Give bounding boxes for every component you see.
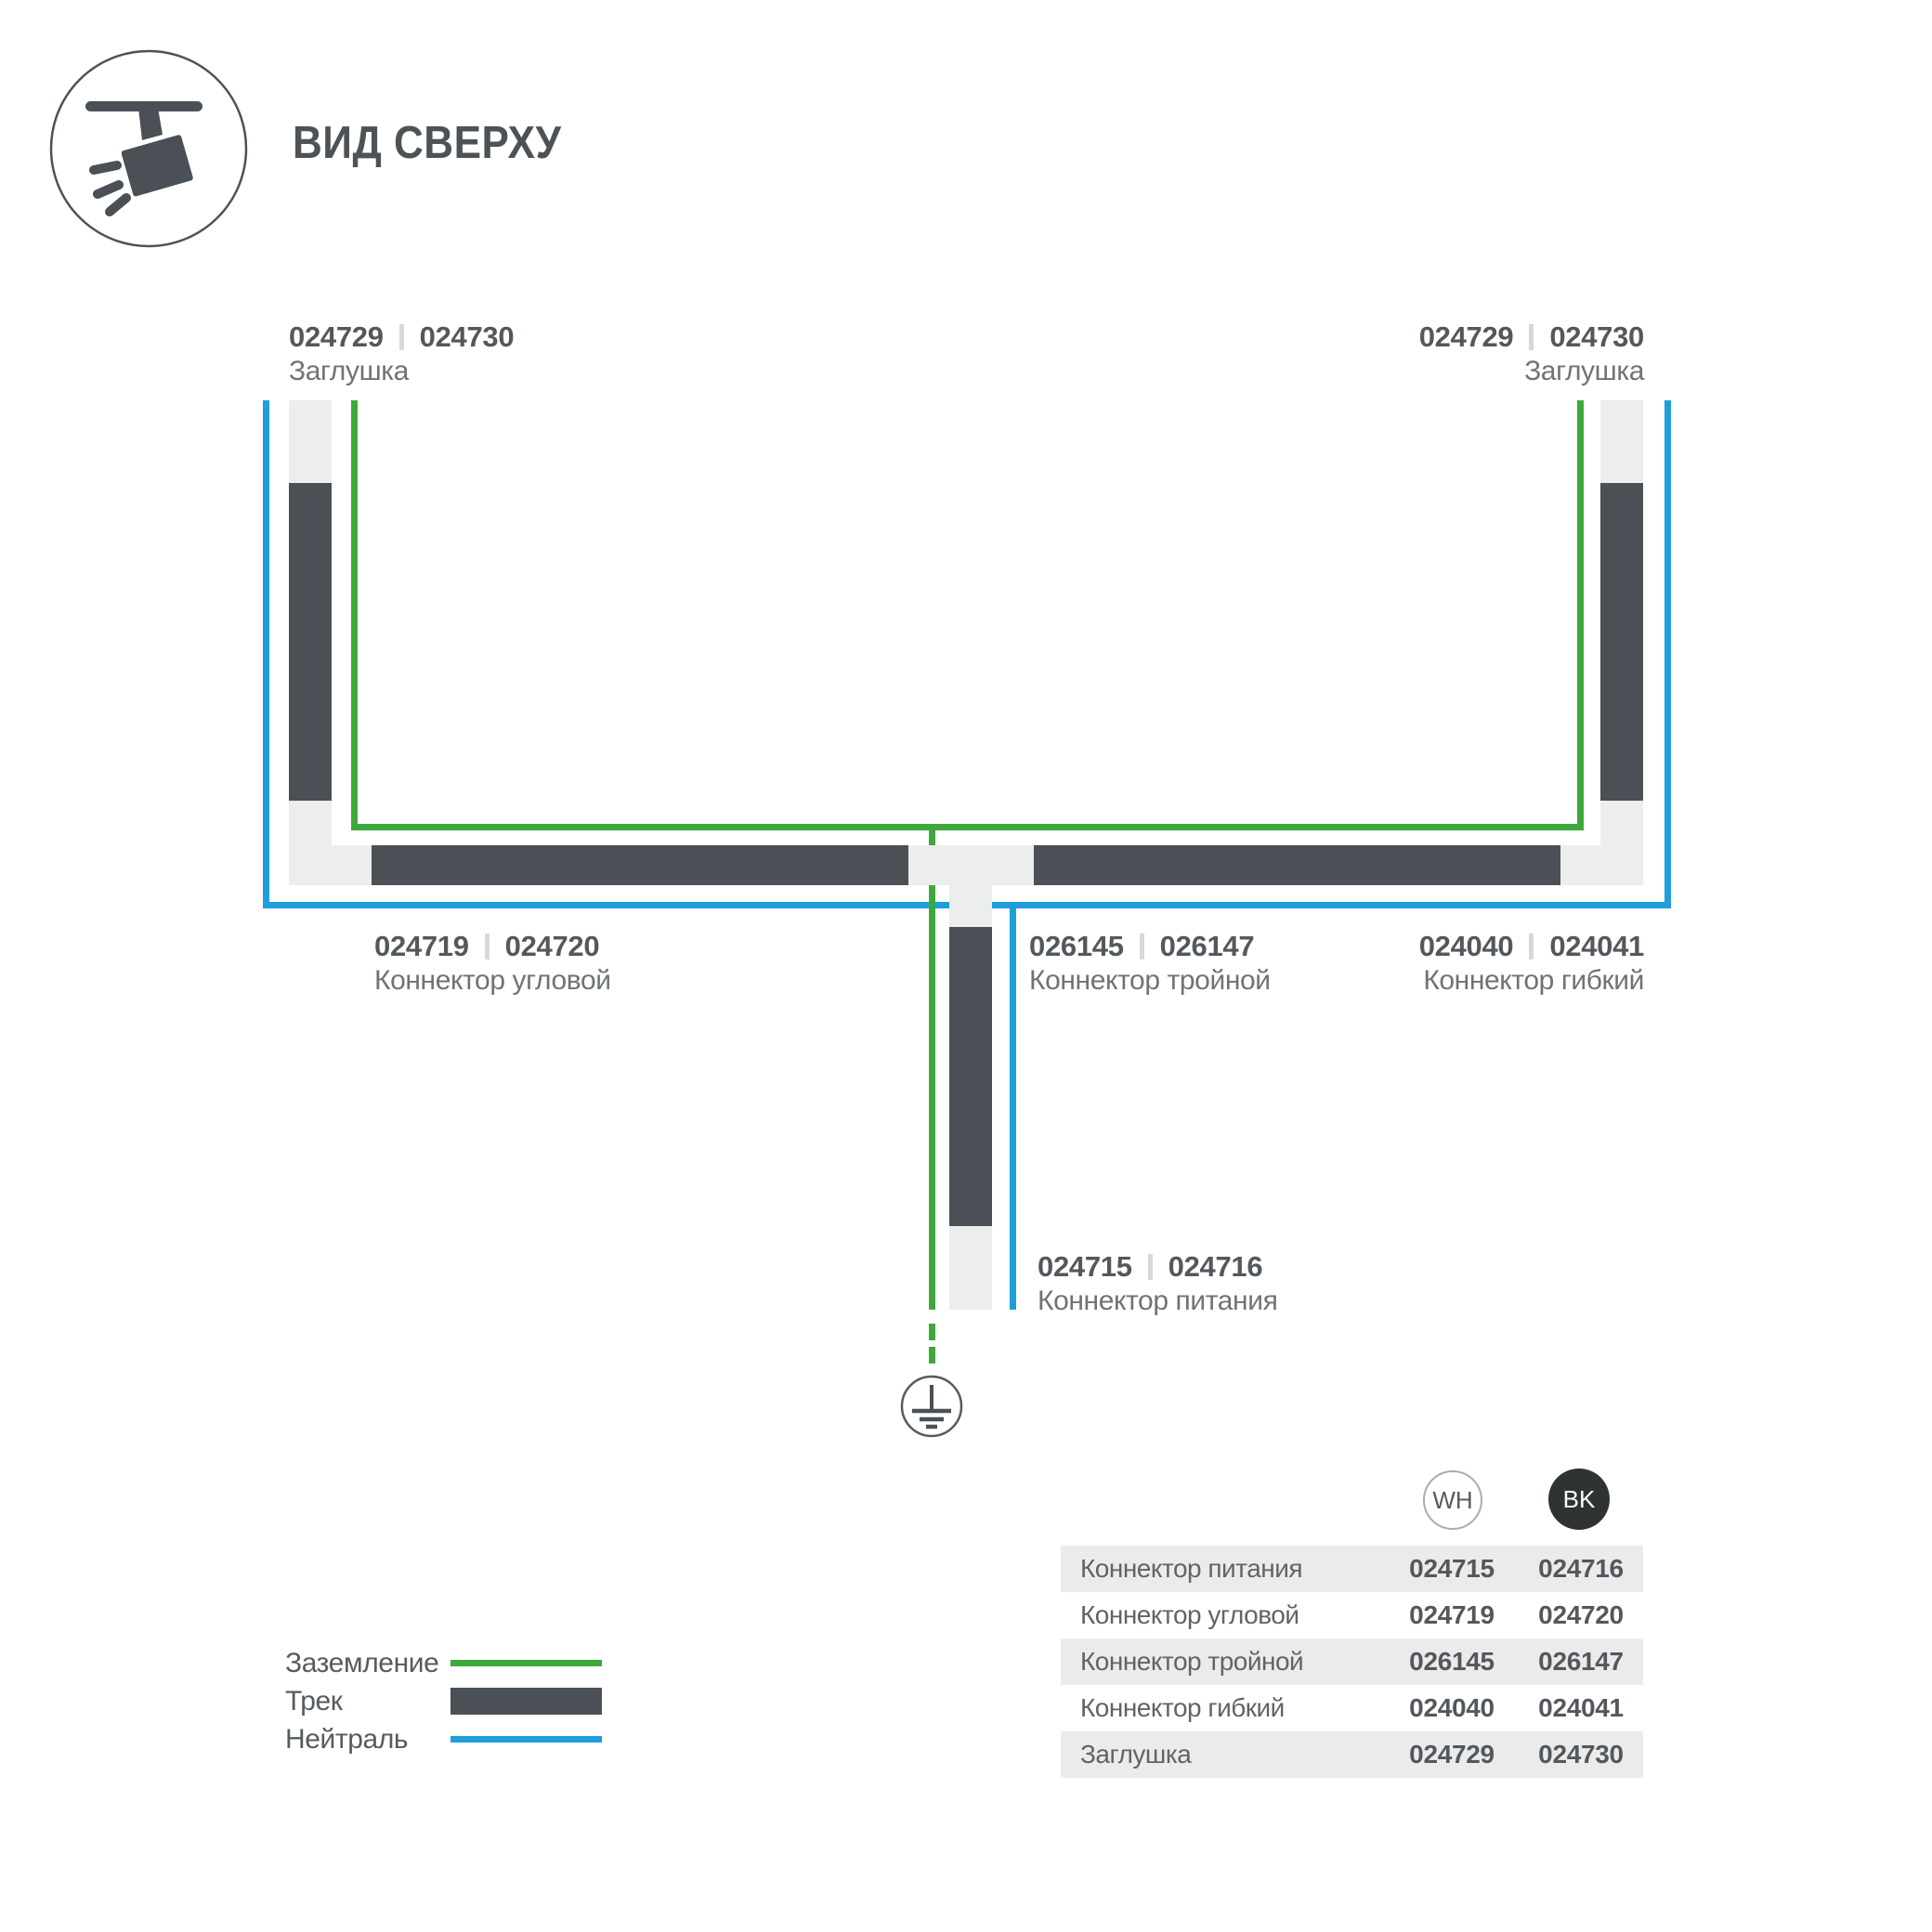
label-flex-connector: 024040024041 Коннектор гибкий [1419, 929, 1644, 998]
row-code-wh: 024715 [1382, 1554, 1521, 1584]
legend-label: Нейтраль [285, 1724, 450, 1756]
table-row: Коннектор питания 024715 024716 [1061, 1546, 1643, 1592]
code-divider [1140, 933, 1144, 959]
row-code-bk: 024041 [1511, 1693, 1651, 1723]
legend-item-neutral: Нейтраль [285, 1720, 602, 1758]
table-row: Коннектор угловой 024719 024720 [1061, 1592, 1643, 1638]
label-triple-connector: 026145026147 Коннектор тройной [1029, 929, 1271, 998]
ground-line-dash [929, 1347, 935, 1364]
triple-connector [949, 885, 992, 927]
row-code-bk: 026147 [1511, 1647, 1651, 1677]
row-label: Заглушка [1061, 1740, 1191, 1769]
code-divider [1529, 324, 1534, 350]
parts-table-header: WH BK [1061, 1470, 1643, 1546]
part-codes: 024040024041 [1419, 929, 1644, 963]
flex-connector-right [1560, 845, 1600, 885]
table-row: Коннектор гибкий 024040 024041 [1061, 1685, 1643, 1731]
page: ВИД СВЕРХУ 024729024730 Заглушка 0247290 [0, 0, 1932, 1932]
part-codes: 024729024730 [289, 320, 514, 354]
row-label: Коннектор тройной [1061, 1647, 1303, 1677]
legend-item-ground: Заземление [285, 1644, 602, 1682]
legend-label: Трек [285, 1686, 450, 1717]
corner-connector-left [332, 845, 372, 885]
end-cap-left [289, 400, 332, 483]
label-end-cap-left: 024729024730 Заглушка [289, 320, 514, 388]
ground-line-feed [929, 830, 935, 1310]
part-codes: 024715024716 [1038, 1249, 1277, 1284]
part-codes: 024719024720 [374, 929, 611, 963]
row-code-wh: 024719 [1382, 1600, 1521, 1630]
parts-table: WH BK Коннектор питания 024715 024716 Ко… [1061, 1470, 1643, 1778]
neutral-line-feed [1010, 908, 1016, 1310]
row-code-bk: 024730 [1511, 1740, 1651, 1769]
ground-line-bottom [351, 824, 1584, 830]
row-label: Коннектор угловой [1061, 1600, 1299, 1630]
page-title: ВИД СВЕРХУ [293, 117, 561, 169]
wh-color-badge: WH [1423, 1470, 1482, 1530]
code-divider [399, 324, 404, 350]
ceiling-track-spotlight-icon [48, 48, 249, 249]
neutral-line-right [1664, 400, 1671, 908]
label-end-cap-right: 024729024730 Заглушка [1419, 320, 1644, 388]
triple-connector [908, 845, 1034, 885]
row-code-wh: 024729 [1382, 1740, 1521, 1769]
power-connector [949, 1226, 992, 1310]
row-code-bk: 024716 [1511, 1554, 1651, 1584]
part-codes: 024729024730 [1419, 320, 1644, 354]
part-codes: 026145026147 [1029, 929, 1271, 963]
neutral-line-left [263, 400, 269, 908]
legend-label: Заземление [285, 1648, 450, 1679]
part-name: Коннектор тройной [1029, 963, 1271, 998]
track-bottom-right [1034, 845, 1560, 885]
label-corner-connector: 024719024720 Коннектор угловой [374, 929, 611, 998]
end-cap-right [1600, 400, 1643, 483]
code-divider [1529, 933, 1534, 959]
row-label: Коннектор гибкий [1061, 1693, 1285, 1723]
code-divider [1148, 1254, 1153, 1280]
table-row: Заглушка 024729 024730 [1061, 1731, 1643, 1778]
legend: Заземление Трек Нейтраль [285, 1644, 602, 1758]
row-label: Коннектор питания [1061, 1554, 1302, 1584]
part-name: Коннектор гибкий [1419, 963, 1644, 998]
track-power-stub [949, 927, 992, 1226]
neutral-line-swatch [450, 1736, 602, 1743]
ground-line-right [1577, 400, 1584, 830]
code-divider [485, 933, 490, 959]
part-name: Заглушка [289, 354, 514, 388]
table-row: Коннектор тройной 026145 026147 [1061, 1638, 1643, 1685]
bk-color-badge: BK [1548, 1469, 1610, 1530]
row-code-wh: 026145 [1382, 1647, 1521, 1677]
ground-line-dash [929, 1324, 935, 1340]
ground-line-left [351, 400, 358, 830]
track-bottom-left [372, 845, 908, 885]
track-left [289, 483, 332, 801]
track-right [1600, 483, 1643, 801]
earth-ground-icon [899, 1374, 964, 1439]
label-power-connector: 024715024716 Коннектор питания [1038, 1249, 1277, 1318]
row-code-wh: 024040 [1382, 1693, 1521, 1723]
part-name: Коннектор угловой [374, 963, 611, 998]
part-name: Заглушка [1419, 354, 1644, 388]
flex-connector-right [1600, 801, 1643, 885]
legend-item-track: Трек [285, 1682, 602, 1720]
ground-line-swatch [450, 1660, 602, 1666]
track-bar-swatch [450, 1688, 602, 1715]
part-name: Коннектор питания [1038, 1284, 1277, 1318]
row-code-bk: 024720 [1511, 1600, 1651, 1630]
corner-connector-left [289, 801, 332, 885]
